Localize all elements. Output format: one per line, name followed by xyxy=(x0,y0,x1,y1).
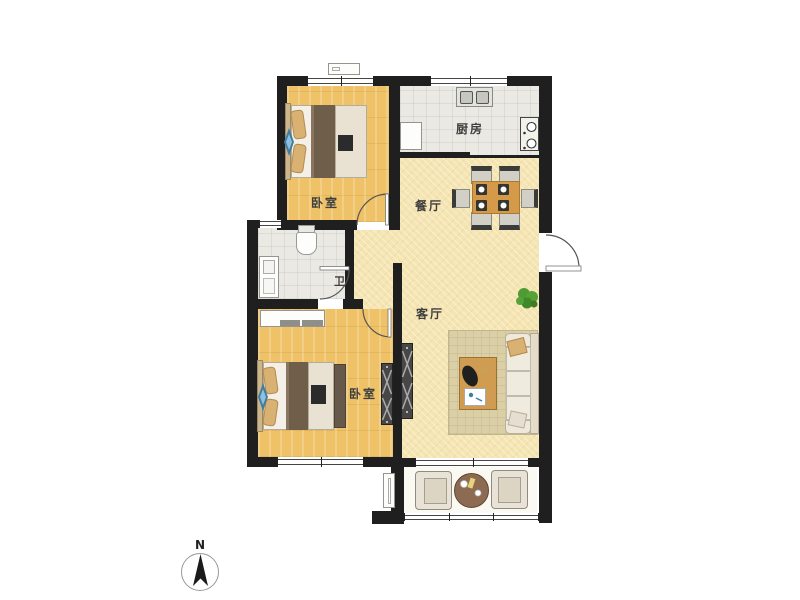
wardrobe xyxy=(260,310,325,327)
wall-bedroom-top-right xyxy=(389,86,400,230)
wall-kitchen-bottom xyxy=(395,152,470,158)
ac-unit-top-grille xyxy=(332,67,340,71)
window-kitchen xyxy=(430,76,509,86)
room-label-living: 客厅 xyxy=(416,308,444,320)
window-balcony-door xyxy=(415,458,530,467)
floor-plan: 卧室 厨房 餐厅 卫 客厅 卧室 N xyxy=(0,0,800,600)
balcony-chair-right-cushion xyxy=(498,477,521,503)
wall-balcony-top-right xyxy=(528,458,539,467)
tv-cabinet-bedroom xyxy=(381,363,393,425)
vanity-basin xyxy=(263,260,275,274)
sofa-pillow-bottom xyxy=(508,410,528,428)
sink-basin-right xyxy=(476,91,489,104)
balcony-table xyxy=(454,473,489,508)
wall-bathroom-bottom-left xyxy=(247,299,318,309)
wall-right-lower xyxy=(539,272,552,523)
bathroom-vanity xyxy=(259,256,279,298)
bed-bottom-bench xyxy=(334,364,346,428)
room-label-bedroom-top: 卧室 xyxy=(311,197,339,209)
wall-top-mid xyxy=(373,76,430,86)
kitchen-stove xyxy=(520,117,539,151)
sink-basin-left xyxy=(460,91,473,104)
dining-chair-bottom-2 xyxy=(499,212,520,230)
sofa-cushion-2 xyxy=(506,371,531,396)
window-bedroom-bottom xyxy=(277,457,365,467)
balcony-chair-left xyxy=(415,471,452,510)
bed-top-tv xyxy=(338,135,353,151)
balcony-chair-left-cushion xyxy=(424,478,447,504)
room-label-bathroom: 卫 xyxy=(334,276,345,287)
ac-unit-balcony-grille xyxy=(388,478,391,504)
wall-kitchen-bottom-thin xyxy=(470,155,539,158)
wall-bathroom-bottom-right xyxy=(343,299,363,309)
room-label-kitchen: 厨房 xyxy=(456,123,484,135)
kitchen-sink xyxy=(456,87,493,107)
wardrobe-clothes-2 xyxy=(302,320,323,326)
bed-top-blanket xyxy=(311,105,335,178)
wardrobe-clothes-1 xyxy=(280,320,300,326)
wall-bathroom-right xyxy=(345,228,354,299)
entrance-opening xyxy=(539,233,552,272)
dining-chair-bottom-1 xyxy=(471,212,492,230)
room-label-dining: 餐厅 xyxy=(415,200,443,212)
ac-unit-top xyxy=(328,63,360,75)
wall-right-upper xyxy=(539,86,552,233)
bed-bottom-tv xyxy=(311,385,326,404)
vanity-shelf xyxy=(263,278,275,294)
wall-balcony-corner-block xyxy=(372,511,404,524)
ac-unit-balcony xyxy=(383,473,395,508)
kitchen-counter xyxy=(400,122,422,150)
window-balcony-bottom xyxy=(404,513,539,521)
room-label-bedroom-bottom: 卧室 xyxy=(349,388,377,400)
dining-table xyxy=(472,181,520,214)
window-bathroom xyxy=(259,220,283,228)
wall-bottom-left xyxy=(247,457,277,467)
bed-bottom-blanket xyxy=(286,362,308,430)
window-bedroom-top xyxy=(307,76,375,86)
compass-north-label: N xyxy=(195,539,205,551)
dining-chair-left xyxy=(452,189,470,208)
wall-bathroom-top-corner xyxy=(247,220,259,228)
wall-top-left xyxy=(277,76,307,86)
toilet-bowl xyxy=(296,232,317,255)
wall-balcony-top-left xyxy=(391,458,415,467)
tv-cabinet-living xyxy=(401,343,413,419)
sofa-backrest xyxy=(530,333,539,434)
dining-chair-right xyxy=(521,189,538,208)
compass xyxy=(182,554,219,591)
wall-top-right xyxy=(507,76,552,86)
coffee-table-tray xyxy=(464,388,486,406)
balcony-chair-right xyxy=(491,470,528,509)
